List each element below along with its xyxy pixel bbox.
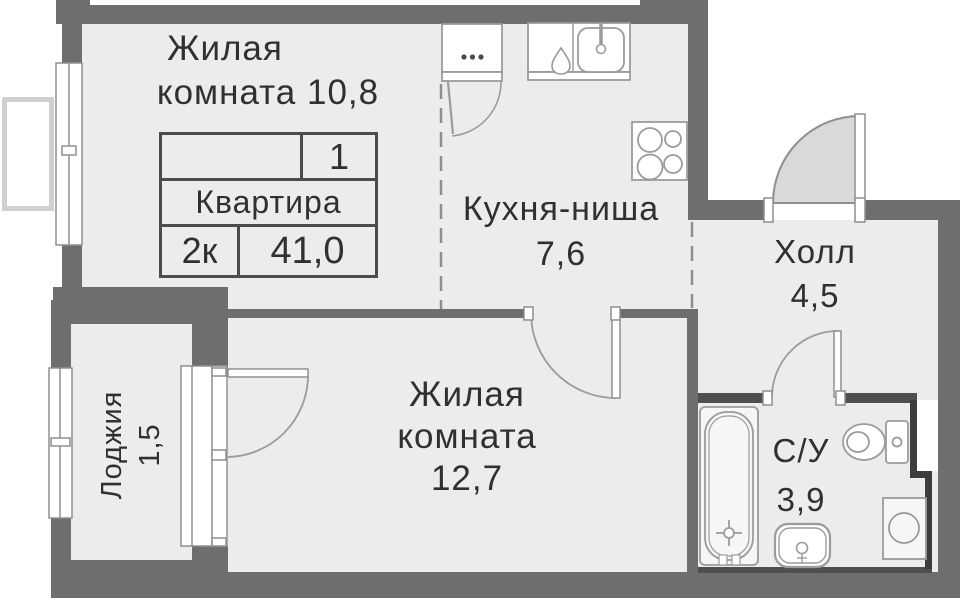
label-bathroom: С/У 3,9 [741,426,861,524]
table-cell-total-area: 41,0 [240,227,375,275]
balcony-door [228,369,308,457]
label-hall: Холл 4,5 [725,230,905,318]
label-living1-line2: комната 10,8 [112,71,424,115]
table-cell-label: Квартира [195,184,341,221]
table-row-position: 1 [162,135,375,181]
floor-plan: Жилая комната 10,8 Кухня-ниша 7,6 Холл 4… [0,0,961,600]
window-loggia-partition [181,366,227,546]
label-living1-line1: Жилая [130,27,320,71]
kitchen-sink [578,23,624,72]
entrance-door [764,114,865,222]
table-row-area: 2к 41,0 [162,227,375,275]
label-living2: Жилая комната 12,7 [320,374,614,500]
vent-dot [478,54,483,59]
washing-machine [883,498,926,559]
bathroom-door [763,331,845,405]
bathroom-sink [775,524,830,567]
vent-dot [470,54,475,59]
window-living1 [56,63,82,245]
label-loggia: Лоджия 1,5 [93,330,175,560]
apartment-info-table: 1 Квартира 2к 41,0 [159,132,378,278]
table-row-label: Квартира [162,181,375,227]
vent-dot [461,54,466,59]
window-loggia-outer [49,368,72,518]
ventilation-cabinet [442,24,502,136]
table-cell-empty [162,135,303,178]
kitchen-counter [528,23,630,80]
label-kitchen: Кухня-ниша 7,6 [425,187,697,277]
stove [632,122,687,180]
table-cell-position: 1 [303,135,375,178]
table-cell-rooms-count: 2к [162,227,240,275]
